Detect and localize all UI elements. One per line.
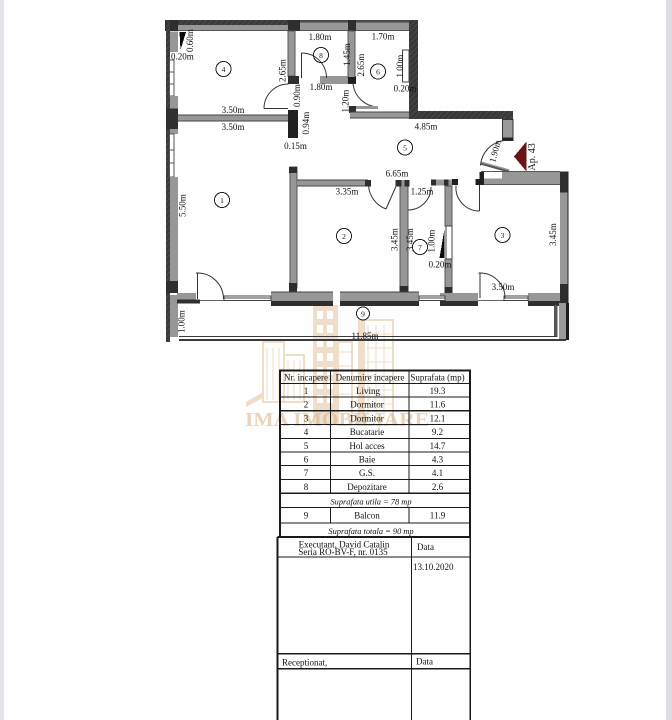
svg-text:Suprafata utila = 78 mp: Suprafata utila = 78 mp [330,497,411,506]
svg-text:5: 5 [304,441,309,451]
svg-text:3.50m: 3.50m [222,105,245,115]
svg-text:1.00m: 1.00m [427,230,437,253]
svg-text:13.10.2020: 13.10.2020 [413,562,454,572]
svg-text:1.20m: 1.20m [341,90,351,113]
svg-text:3.45m: 3.45m [390,228,400,251]
svg-text:Living: Living [356,386,380,396]
svg-text:1.00m: 1.00m [177,310,187,333]
svg-text:12.1: 12.1 [430,413,446,423]
svg-text:Data: Data [416,657,433,667]
svg-text:Dormitor: Dormitor [350,413,384,423]
svg-text:1.45m: 1.45m [342,43,352,66]
svg-text:3.50m: 3.50m [492,282,515,292]
svg-text:11.85m: 11.85m [352,331,379,341]
svg-text:7: 7 [418,243,422,252]
svg-text:Data: Data [417,542,434,552]
svg-text:Depozitare: Depozitare [347,482,386,492]
svg-text:Dormitor: Dormitor [350,400,384,410]
svg-text:Denumire incapere: Denumire incapere [336,373,405,383]
svg-text:2.65m: 2.65m [356,54,366,77]
svg-text:Nr. incapere: Nr. incapere [284,373,328,383]
svg-text:Suprafata totala = 90 mp: Suprafata totala = 90 mp [328,527,413,536]
svg-text:6: 6 [376,68,380,77]
svg-text:4.85m: 4.85m [415,122,438,132]
svg-text:1.80m: 1.80m [309,32,332,42]
svg-text:3.35m: 3.35m [336,187,359,197]
svg-text:9.2: 9.2 [432,427,443,437]
svg-text:Ap. 43: Ap. 43 [527,143,538,170]
svg-text:G.S.: G.S. [359,468,375,478]
svg-text:3: 3 [501,231,505,240]
svg-text:0.20m: 0.20m [429,260,452,270]
svg-text:Baie: Baie [359,455,376,465]
svg-text:Hol acces: Hol acces [349,441,385,451]
svg-text:3.45m: 3.45m [405,228,415,251]
svg-text:2.6: 2.6 [432,482,444,492]
svg-text:Suprafata (mp): Suprafata (mp) [410,373,464,383]
svg-text:Balcon: Balcon [354,511,380,521]
svg-text:7: 7 [304,468,309,478]
svg-text:3: 3 [304,413,309,423]
svg-text:1.00m: 1.00m [395,55,405,78]
svg-text:3.45m: 3.45m [548,223,558,246]
svg-text:9: 9 [361,310,365,319]
svg-text:8: 8 [319,51,323,60]
svg-text:0.94m: 0.94m [301,112,311,135]
svg-text:6.65m: 6.65m [386,169,409,179]
svg-text:4: 4 [304,427,309,437]
svg-text:5: 5 [403,144,407,153]
svg-text:5.50m: 5.50m [178,194,188,217]
svg-text:IMA IMOBILIARE: IMA IMOBILIARE [245,409,429,431]
svg-text:Seria RO-BV-F, nr. 0135: Seria RO-BV-F, nr. 0135 [298,547,388,557]
svg-text:2: 2 [342,232,346,241]
svg-text:2.65m: 2.65m [278,59,288,82]
svg-text:2: 2 [304,400,309,410]
svg-text:1.70m: 1.70m [372,32,395,42]
svg-text:8: 8 [304,482,309,492]
svg-text:0.15m: 0.15m [284,141,307,151]
svg-text:19.3: 19.3 [430,386,446,396]
svg-text:9: 9 [304,511,309,521]
svg-text:1.80m: 1.80m [310,82,333,92]
svg-text:4: 4 [222,65,226,74]
svg-text:Bucatarie: Bucatarie [350,427,384,437]
svg-text:4.1: 4.1 [432,468,443,478]
svg-text:1: 1 [220,196,224,205]
svg-text:6: 6 [304,455,309,465]
svg-text:3.50m: 3.50m [222,122,245,132]
svg-text:0.20m: 0.20m [171,52,194,62]
svg-text:0.20m: 0.20m [394,84,417,94]
svg-text:4.3: 4.3 [432,455,444,465]
svg-text:1.90m: 1.90m [487,139,503,164]
svg-text:14.7: 14.7 [430,441,446,451]
svg-text:0.90m: 0.90m [292,84,302,107]
svg-text:Receptionat,: Receptionat, [282,657,327,667]
svg-text:0.60m: 0.60m [185,29,195,52]
svg-text:11.6: 11.6 [430,400,446,410]
svg-text:1: 1 [304,386,309,396]
svg-text:11.9: 11.9 [430,511,446,521]
svg-text:1.25m: 1.25m [411,187,434,197]
